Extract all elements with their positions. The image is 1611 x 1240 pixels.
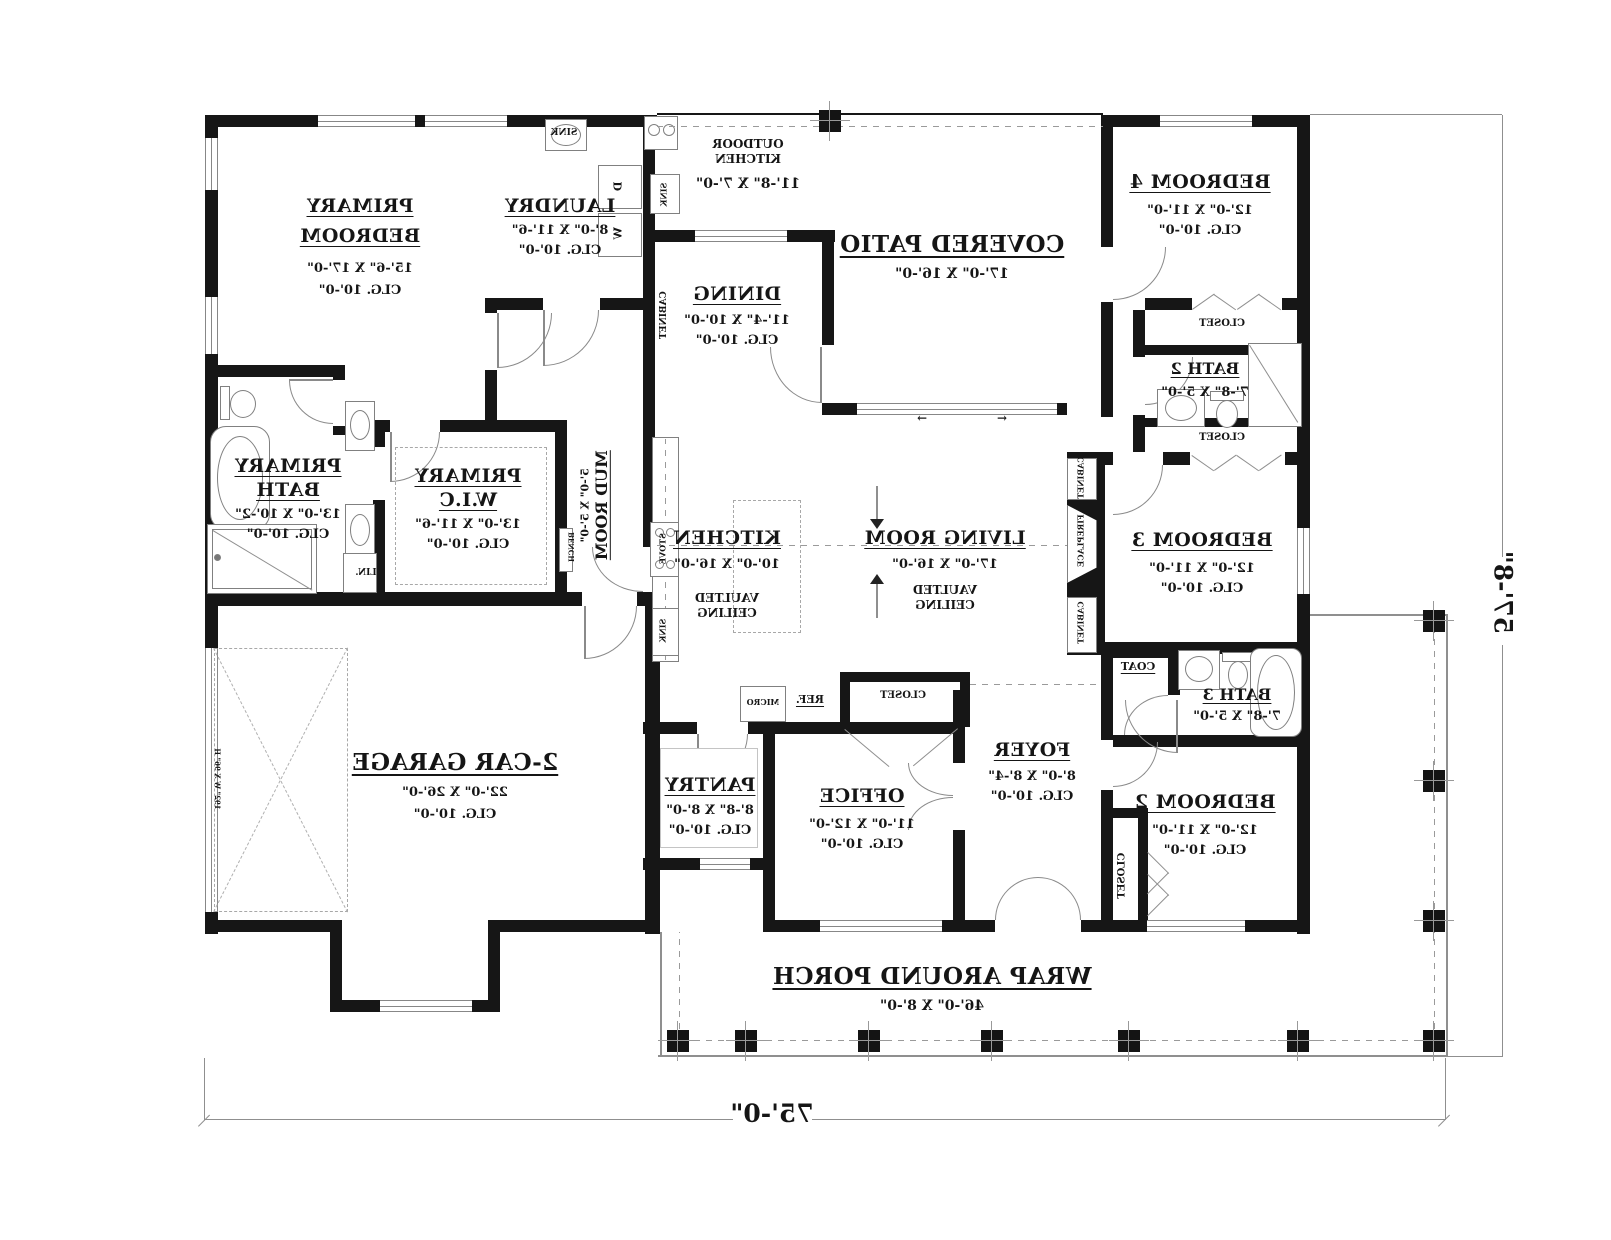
door-opening [697,722,748,734]
slider-arrow-right: → [982,412,1022,426]
closet-door-leaf [1147,894,1169,916]
wall-segment [1282,298,1310,310]
room-ceiling: CLG. 10'-0" [1102,582,1302,597]
wall-segment [775,722,965,734]
patio-edge [657,113,1103,115]
stove-label: STOVE [658,527,667,571]
dimension-line [812,1119,1446,1120]
shower-head [214,554,221,561]
extension-line [204,1058,205,1120]
wall-segment [205,365,345,377]
wall-segment [205,592,582,606]
dimension-line [205,1119,733,1120]
closet-label: CLOSET [1167,318,1277,330]
wall-segment [497,298,543,310]
door-leaf [584,606,586,659]
sink-basin [350,410,370,440]
room-label: W.I.C [383,490,553,512]
window [205,297,218,354]
micro-label: MICRO [733,698,793,707]
door-opening [543,298,600,310]
porch-column [858,1030,880,1052]
door-opening [582,592,637,606]
room-dims: 12'-0" X 11'-0" [1102,562,1302,577]
room-ceiling: CLG. 10'-0" [957,790,1107,805]
room-label: BATH 2 [1145,360,1265,378]
wall-segment [953,830,965,922]
room-label: BEDROOM 4 [1100,172,1300,194]
room-label: OUTDOOR [678,138,818,152]
room-label: DINING [657,284,817,306]
window [695,230,787,242]
slider-arrow-left: ← [902,412,942,426]
window [700,858,750,870]
room-note: CEILING [835,599,1055,613]
vault-arrow-shaft [876,486,878,520]
cabinet-label: CABINET [659,287,669,343]
dimension-tick [1438,1115,1450,1127]
window [1147,920,1245,932]
room-label: PRIMARY [240,196,480,218]
room-ceiling: CLG. 10'-0" [652,334,822,349]
door-arc [584,606,637,659]
wall-segment [485,298,497,313]
door-opening [333,380,345,426]
sliding-glass-door [857,403,1057,415]
overall-depth-dimension: 57'-8" [1488,532,1517,652]
wall-segment [488,920,500,1012]
room-ceiling: CLG. 10'-0" [315,808,595,823]
room-dims: 22'-0" X 26'-0" [315,786,595,801]
extension-line [1310,114,1502,115]
porch-column [1423,770,1445,792]
fireplace-label: FIREPLACE [1076,509,1085,573]
toilet-bowl [230,390,256,418]
window [425,115,507,127]
room-dims: 11'-0" X 12'-0" [782,818,942,833]
bench-label: BENCH [568,527,576,567]
porch-roof-dash [1434,620,1435,1041]
room-dims: 11'-8" X 7'-0" [668,176,828,192]
room-label: BEDROOM [240,226,480,248]
door-opening [822,345,834,403]
floor-plan-sheet: PRIMARY BEDROOM 15'-6" X 17'-0" CLG. 10'… [0,0,1611,1240]
wall-segment [440,420,567,432]
garage-door-label: 192" W X 96" H [213,724,221,834]
closet-label: CLOSET [848,690,958,702]
room-label: BEDROOM 2 [1105,792,1305,814]
door-leaf [289,379,333,381]
wall-segment [205,920,342,932]
room-dims: 7'-8" X 5'-0" [1140,386,1270,401]
room-label: LIVING ROOM [835,528,1055,550]
room-ceiling: CLG. 10'-0" [1100,224,1300,239]
washer-label: W [613,218,626,248]
door-opening [1113,452,1163,465]
porch-roof-dash [670,1040,1434,1041]
room-dims: 8'-0" X 8'-4" [957,770,1107,785]
window [1160,115,1252,127]
door-leaf [820,347,822,403]
room-dims: 5'-0" X 5'-0" [580,450,593,560]
window [205,138,218,190]
room-dims: 13'-0" X 10'-2" [203,508,373,523]
porch-column [1118,1030,1140,1052]
dimension-line [1502,115,1503,557]
room-label: BATH 3 [1177,686,1297,704]
wall-segment [1101,690,1113,740]
room-dims: 17'-0" X 16'-0" [802,266,1102,282]
wall-segment [763,722,775,920]
door-opening [485,313,497,370]
room-label: PRIMARY [383,466,553,488]
closet-door-leaf [1147,874,1169,896]
sink-basin [1185,656,1213,682]
room-ceiling: CLG. 10'-0" [203,528,373,543]
door-arc [289,380,333,424]
wall-segment [488,920,660,932]
room-note: VAULTED [637,592,817,606]
closet-label: CLOSET [1116,831,1128,921]
room-ceiling: CLG. 10'-0" [240,284,480,299]
room-label: MUD ROOM [593,445,611,565]
porch-column [735,1030,757,1052]
door-leaf [497,313,499,368]
room-label: 2-CAR GARAGE [315,750,595,776]
room-label: BATH [203,480,373,502]
room-dims: 8'-8" X 8'-0" [630,804,790,819]
door-arc [1038,877,1081,920]
wall-segment [333,365,345,380]
room-dims: 15'-6" X 17'-0" [240,262,480,277]
sink-label: SINK [659,175,668,215]
room-ceiling: CLG. 10'-0" [782,838,942,853]
sink-label: SINK [658,611,667,651]
ceiling-break-line [970,684,1101,685]
door-arc [1113,247,1166,300]
porch-edge [658,1055,1448,1057]
door-opening [390,420,440,432]
door-arc [995,877,1038,920]
wall-segment [1101,302,1113,417]
porch-label: WRAP AROUND PORCH [732,964,1132,990]
patio-column [819,110,841,132]
porch-column [1423,910,1445,932]
toilet-tank [220,386,230,420]
vault-arrow-up [870,574,884,584]
room-label: OFFICE [782,786,942,808]
extension-line [1448,1056,1502,1057]
door-opening [995,920,1081,932]
wall-segment [960,672,970,727]
room-dims: 7'-8" X 5'-0" [1172,710,1302,725]
porch-roof-dash [679,932,680,1041]
window [820,920,942,932]
porch-column [1423,610,1445,632]
door-arc [770,347,822,403]
sink-label: SINK [534,128,594,138]
dryer-label: D [613,171,626,201]
room-label: PANTRY [630,775,790,797]
door-leaf [1176,700,1178,753]
room-ceiling: CLG. 10'-0" [630,824,790,839]
wall-segment [1163,452,1190,465]
wall-segment [1105,452,1113,465]
room-dims: 13'-0" X 11'-6" [383,518,553,533]
porch-column [667,1030,689,1052]
wall-segment [1133,310,1145,357]
linen-label: LIN. [344,568,388,578]
wall-segment [840,672,970,682]
room-dims: 12'-0" X 11'-0" [1100,204,1300,219]
window [318,115,415,127]
room-ceiling: CLG. 10'-0" [383,538,553,553]
porch-edge [660,932,662,1056]
room-dims: 12'-0" X 11'-0" [1105,824,1305,839]
cabinet-label: CABINET [1076,455,1085,501]
porch-dims: 46'-0" X 8'-0" [782,998,1082,1014]
room-dims: 11'-4" X 10'-0" [652,314,822,329]
wall-segment [1285,452,1310,465]
closet-label: CLOSET [1167,432,1277,444]
patio-roof-dash [657,126,1103,127]
door-opening [1101,247,1113,302]
wall-segment [330,920,342,1012]
room-label: KITCHEN [678,153,818,167]
wall-segment [333,426,345,435]
closet-door-leaf [844,729,889,767]
porch-column [981,1030,1003,1052]
porch-column [1287,1030,1309,1052]
room-label: BEDROOM 3 [1102,530,1302,552]
room-label: FOYER [957,740,1107,762]
room-label: COVERED PATIO [802,232,1102,258]
room-note: VAULTED [835,584,1055,598]
porch-edge [1446,614,1448,1057]
door-arc [1113,742,1158,787]
overall-width-dimension: 75'-0" [707,1100,837,1129]
toilet-bowl [1216,400,1238,428]
window [380,1000,472,1012]
room-dims: 17'-0" X 16'-0" [835,558,1055,573]
room-label: PRIMARY [203,456,373,478]
coat-label: COAT [1088,661,1188,674]
door-arc [1113,465,1163,515]
wall-segment [1145,298,1192,310]
dimension-line [1502,645,1503,1057]
extension-line [1445,1058,1446,1120]
room-ceiling: CLG. 10'-0" [1105,844,1305,859]
porch-column [1423,1030,1445,1052]
cabinet-label: CABINET [1076,600,1085,646]
wall-segment [600,298,655,310]
